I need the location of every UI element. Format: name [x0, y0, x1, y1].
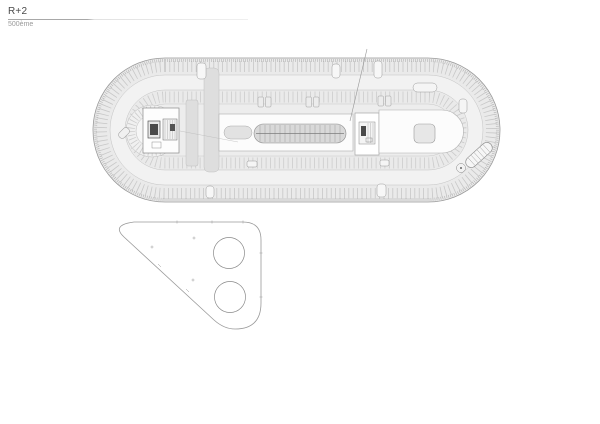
central-ramp	[254, 124, 346, 143]
circular-opening-lower	[215, 282, 246, 313]
stair-core-left	[143, 108, 179, 153]
stair-core-middle	[355, 113, 379, 155]
void-opening	[414, 124, 435, 143]
ramp-landing	[224, 126, 252, 139]
drawing-sheet: { "page": { "width": 600, "height": 424,…	[0, 0, 600, 424]
triangle-slab-plan	[119, 221, 262, 330]
slab-outline	[119, 222, 261, 329]
plan-drawing	[0, 0, 600, 424]
circular-opening-upper	[214, 238, 245, 269]
ramp-band-a	[186, 100, 198, 166]
oval-parking-plan	[93, 49, 500, 202]
ramp-band-b	[204, 68, 219, 172]
